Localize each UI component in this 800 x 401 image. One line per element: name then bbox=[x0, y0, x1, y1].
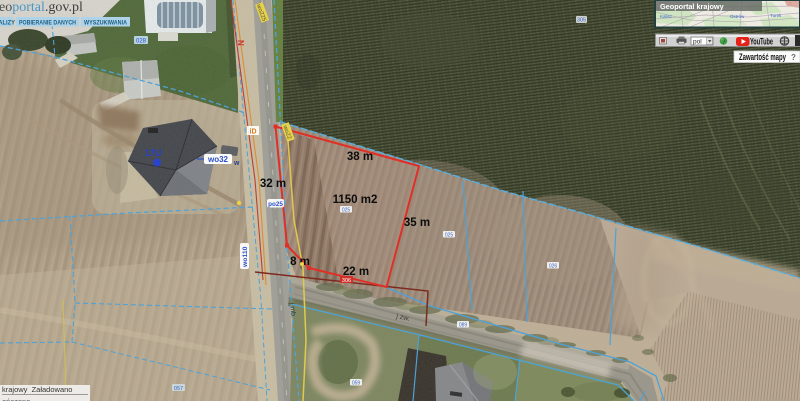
svg-text:eoportal.gov.pl: eoportal.gov.pl bbox=[0, 0, 83, 15]
svg-text:w: w bbox=[233, 160, 240, 167]
svg-text:Kalisz: Kalisz bbox=[660, 14, 673, 19]
svg-text:1150 m2: 1150 m2 bbox=[333, 194, 378, 206]
svg-text:35 m: 35 m bbox=[404, 217, 430, 229]
svg-text:22 m: 22 m bbox=[343, 266, 369, 278]
svg-text:POBIERANIE DANYCH: POBIERANIE DANYCH bbox=[19, 19, 76, 26]
svg-text:38 m: 38 m bbox=[347, 151, 373, 163]
svg-text:306: 306 bbox=[342, 278, 351, 284]
svg-text:YouTube: YouTube bbox=[750, 36, 773, 46]
svg-text:ończono: ończono bbox=[2, 397, 30, 401]
svg-text:17U: 17U bbox=[145, 148, 162, 158]
svg-text:iD: iD bbox=[250, 129, 257, 136]
svg-text:pol: pol bbox=[693, 39, 702, 46]
svg-text:025: 025 bbox=[342, 208, 351, 214]
svg-text:Turek: Turek bbox=[770, 13, 782, 18]
svg-text:po25: po25 bbox=[268, 201, 283, 208]
svg-text:026: 026 bbox=[549, 264, 558, 270]
svg-text:089: 089 bbox=[459, 323, 468, 329]
svg-text:N: N bbox=[236, 40, 245, 46]
svg-text:305: 305 bbox=[577, 18, 586, 24]
svg-text:wo32: wo32 bbox=[207, 155, 229, 164]
svg-text:025: 025 bbox=[445, 233, 454, 239]
svg-text:ANALIZY: ANALIZY bbox=[0, 19, 16, 26]
svg-text:028: 028 bbox=[136, 39, 147, 45]
svg-text:059: 059 bbox=[352, 381, 361, 387]
svg-text:057: 057 bbox=[174, 386, 183, 392]
svg-text:8 m: 8 m bbox=[290, 256, 310, 268]
svg-text:32 m: 32 m bbox=[260, 178, 286, 190]
svg-text:WYSZUKIWANIA: WYSZUKIWANIA bbox=[84, 19, 127, 26]
svg-text:Zawartość mapy: Zawartość mapy bbox=[739, 52, 786, 62]
svg-text:?: ? bbox=[791, 53, 796, 62]
svg-text:Ostrów: Ostrów bbox=[730, 14, 745, 19]
svg-text:Geoportal krajowy: Geoportal krajowy bbox=[660, 2, 725, 11]
svg-text:krajowy Załadowano: krajowy Załadowano bbox=[2, 385, 72, 394]
svg-text:wo110: wo110 bbox=[242, 246, 249, 268]
